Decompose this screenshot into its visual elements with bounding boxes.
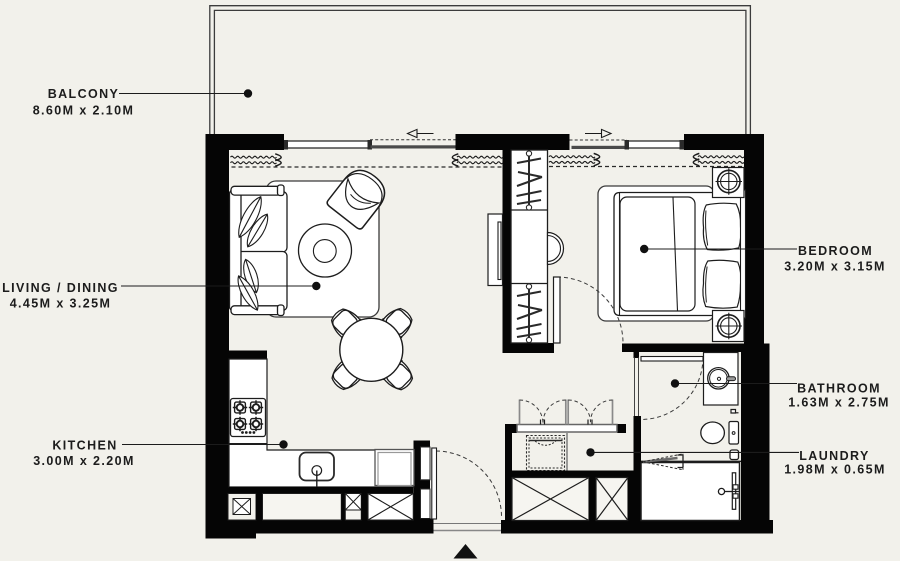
svg-text:8.60M x 2.10M: 8.60M x 2.10M: [33, 104, 135, 118]
svg-text:1.98M x 0.65M: 1.98M x 0.65M: [784, 463, 886, 477]
svg-text:LAUNDRY: LAUNDRY: [799, 449, 869, 463]
svg-text:4.45M x 3.25M: 4.45M x 3.25M: [10, 297, 112, 311]
svg-text:BEDROOM: BEDROOM: [798, 244, 873, 258]
svg-text:KITCHEN: KITCHEN: [52, 439, 117, 453]
svg-text:3.00M x 2.20M: 3.00M x 2.20M: [33, 454, 135, 468]
svg-text:LIVING / DINING: LIVING / DINING: [2, 281, 119, 295]
svg-text:1.63M x 2.75M: 1.63M x 2.75M: [788, 396, 890, 410]
svg-text:BALCONY: BALCONY: [48, 87, 120, 101]
svg-text:3.20M x 3.15M: 3.20M x 3.15M: [784, 260, 886, 274]
svg-text:BATHROOM: BATHROOM: [797, 382, 881, 396]
